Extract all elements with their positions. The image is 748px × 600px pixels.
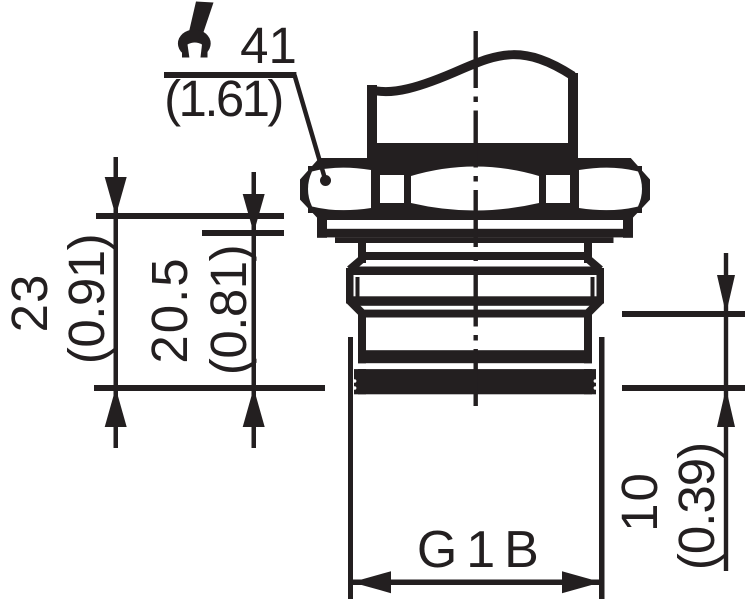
svg-text:(0.39): (0.39): [668, 443, 725, 570]
svg-text:41: 41: [240, 17, 297, 74]
svg-text:10: 10: [611, 471, 668, 532]
svg-text:23: 23: [1, 274, 58, 333]
svg-text:(0.91): (0.91): [58, 234, 115, 364]
svg-text:(1.61): (1.61): [164, 70, 282, 127]
svg-text:G 1 B: G 1 B: [417, 521, 536, 579]
svg-text:(0.81): (0.81): [200, 245, 257, 375]
svg-text:20.5: 20.5: [141, 256, 198, 363]
